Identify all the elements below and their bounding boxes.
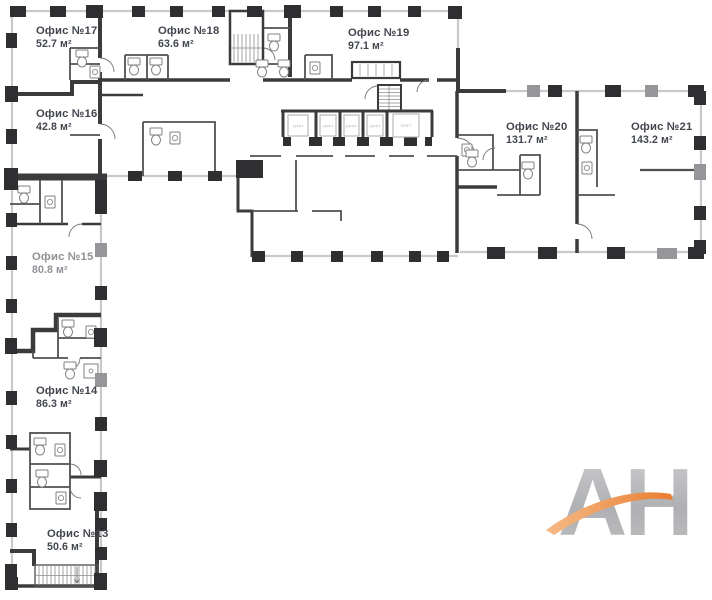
bathroom-fixtures — [18, 34, 592, 504]
office-13-name: Офис №13 — [47, 528, 108, 540]
office-14-label: Офис №14 86.3 м² — [36, 385, 98, 410]
office-14-area: 86.3 м² — [36, 398, 72, 410]
office-21-label: Офис №21 143.2 м² — [631, 121, 692, 146]
office-20-label: Офис №20 131.7 м² — [506, 121, 567, 146]
duct-shaft — [352, 62, 400, 78]
office-17-area: 52.7 м² — [36, 38, 72, 50]
staircase-bottom — [35, 565, 98, 586]
lift-label-4: ЛИФТ — [369, 124, 381, 129]
office-19-area: 97.1 м² — [348, 40, 384, 52]
office-20-area: 131.7 м² — [506, 134, 548, 146]
office-17-name: Офис №17 — [36, 25, 97, 37]
lift-label-2: ЛИФТ — [322, 124, 334, 129]
elevator-door-jambs — [283, 137, 432, 146]
office-18-name: Офис №18 — [158, 25, 219, 37]
office-19-name: Офис №19 — [348, 27, 409, 39]
office-19-label: Офис №19 97.1 м² — [348, 27, 409, 52]
floor-plan-drawing: ЛИФТ ЛИФТ ЛИФТ ЛИФТ ЛИФТ — [0, 0, 712, 600]
office-21-name: Офис №21 — [631, 121, 692, 133]
lift-label-1: ЛИФТ — [292, 124, 304, 129]
lift-label-5: ЛИФТ — [400, 123, 412, 128]
floor-plan: ЛИФТ ЛИФТ ЛИФТ ЛИФТ ЛИФТ — [0, 0, 712, 600]
lift-label-3: ЛИФТ — [346, 124, 358, 129]
office-13-area: 50.6 м² — [47, 541, 83, 553]
office-14-name: Офис №14 — [36, 385, 98, 397]
watermark-logo: АН — [546, 449, 691, 556]
office-21-area: 143.2 м² — [631, 134, 673, 146]
staircase-mid — [378, 85, 401, 111]
structural-walls — [8, 10, 577, 586]
staircase-top — [230, 11, 263, 64]
partition-walls — [10, 10, 701, 509]
office-18-label: Офис №18 63.6 м² — [158, 25, 219, 50]
office-18-area: 63.6 м² — [158, 38, 194, 50]
office-16-name: Офис №16 — [36, 108, 97, 120]
office-15-label: Офис №15 80.8 м² — [32, 251, 93, 276]
office-15-name: Офис №15 — [32, 251, 93, 263]
office-15-area: 80.8 м² — [32, 264, 68, 276]
office-16-label: Офис №16 42.8 м² — [36, 108, 97, 133]
office-20-name: Офис №20 — [506, 121, 567, 133]
office-16-area: 42.8 м² — [36, 121, 72, 133]
elevator-core: ЛИФТ ЛИФТ ЛИФТ ЛИФТ ЛИФТ — [281, 111, 433, 146]
office-17-label: Офис №17 52.7 м² — [36, 25, 97, 50]
